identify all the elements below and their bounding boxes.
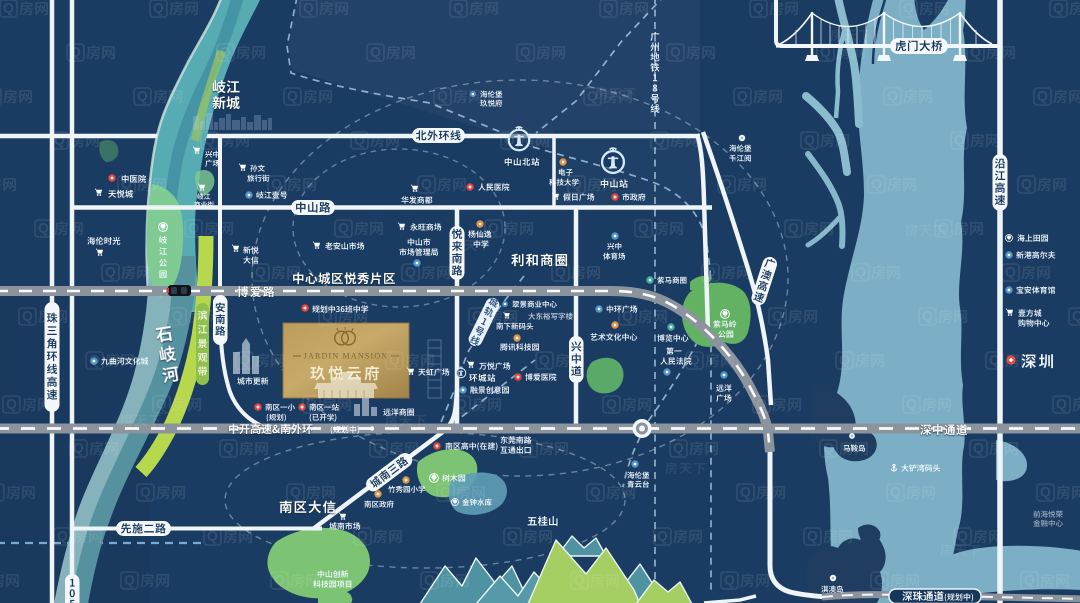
- svg-text:JARDIN MANSION: JARDIN MANSION: [304, 352, 389, 361]
